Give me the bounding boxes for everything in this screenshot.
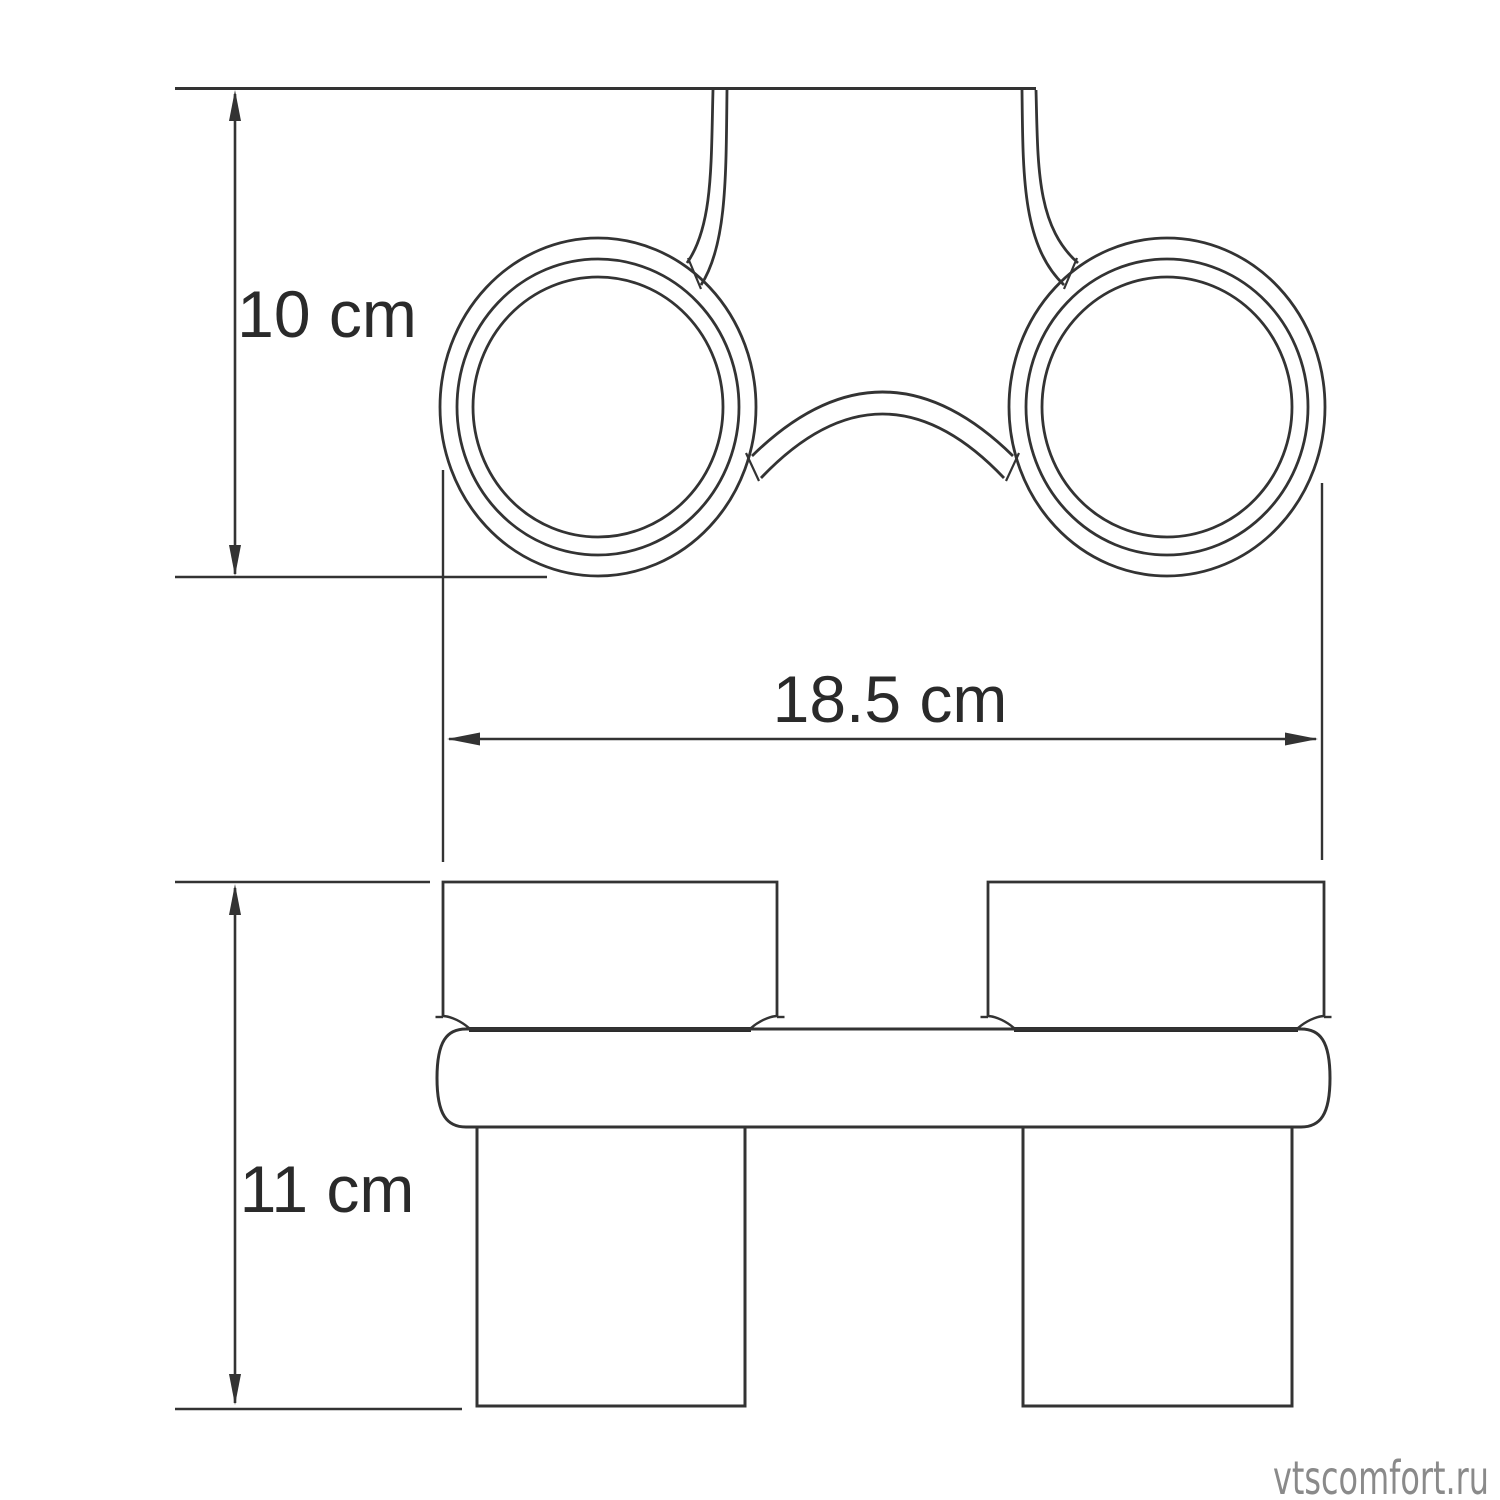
watermark: vtscomfort.ru — [1273, 1451, 1489, 1500]
dimension-11cm: 11 cm — [175, 882, 462, 1409]
arrow-up-icon — [229, 884, 241, 915]
arrow-down-icon — [229, 545, 241, 576]
front-view — [436, 882, 1332, 1406]
ring-bridge — [746, 392, 1019, 481]
drawing-page: 10 cm 18.5 cm — [0, 0, 1500, 1500]
right-glass-left-foot — [988, 1016, 1014, 1028]
left-ring-inner — [473, 277, 723, 537]
arrow-right-icon — [1285, 733, 1318, 746]
bridge-left-seam — [746, 453, 759, 481]
stem-right-inner-edge — [1022, 90, 1064, 285]
left-ring-outer — [440, 238, 756, 576]
right-ring-middle — [1026, 259, 1308, 555]
stem-right-outer-edge — [1036, 90, 1078, 263]
arrow-left-icon — [447, 733, 480, 746]
stem-left-outer-edge — [687, 90, 713, 263]
left-glass-walls — [443, 882, 777, 1017]
dimension-label-height: 11 cm — [240, 1152, 415, 1226]
right-ring — [1009, 238, 1325, 576]
dimension-18-5cm: 18.5 cm — [443, 470, 1322, 862]
left-ring — [440, 238, 756, 576]
stem-right-seam — [1064, 258, 1077, 289]
holder-bar — [437, 1029, 1330, 1127]
right-glass — [981, 882, 1332, 1030]
arrow-down-icon — [229, 1374, 241, 1405]
left-glass — [436, 882, 785, 1030]
dimension-label-width: 18.5 cm — [773, 662, 1008, 736]
arrow-up-icon — [229, 90, 241, 121]
stem-left-inner-edge — [701, 90, 727, 285]
technical-drawing: 10 cm 18.5 cm — [0, 0, 1500, 1500]
right-ring-outer — [1009, 238, 1325, 576]
right-glass-bottom — [1023, 1128, 1292, 1406]
right-glass-right-foot — [1298, 1016, 1324, 1028]
dimension-label-depth: 10 cm — [237, 277, 417, 351]
bridge-inner-arc — [761, 414, 1004, 478]
left-glass-right-foot — [751, 1016, 777, 1028]
left-ring-middle — [457, 259, 739, 555]
bridge-outer-arc — [752, 392, 1013, 456]
mount-stem — [687, 90, 1078, 289]
right-ring-inner — [1042, 277, 1292, 537]
left-glass-left-foot — [443, 1016, 469, 1028]
stem-left-seam — [688, 258, 701, 289]
bridge-right-seam — [1006, 453, 1019, 481]
left-glass-bottom — [477, 1128, 745, 1406]
right-glass-walls — [988, 882, 1324, 1017]
